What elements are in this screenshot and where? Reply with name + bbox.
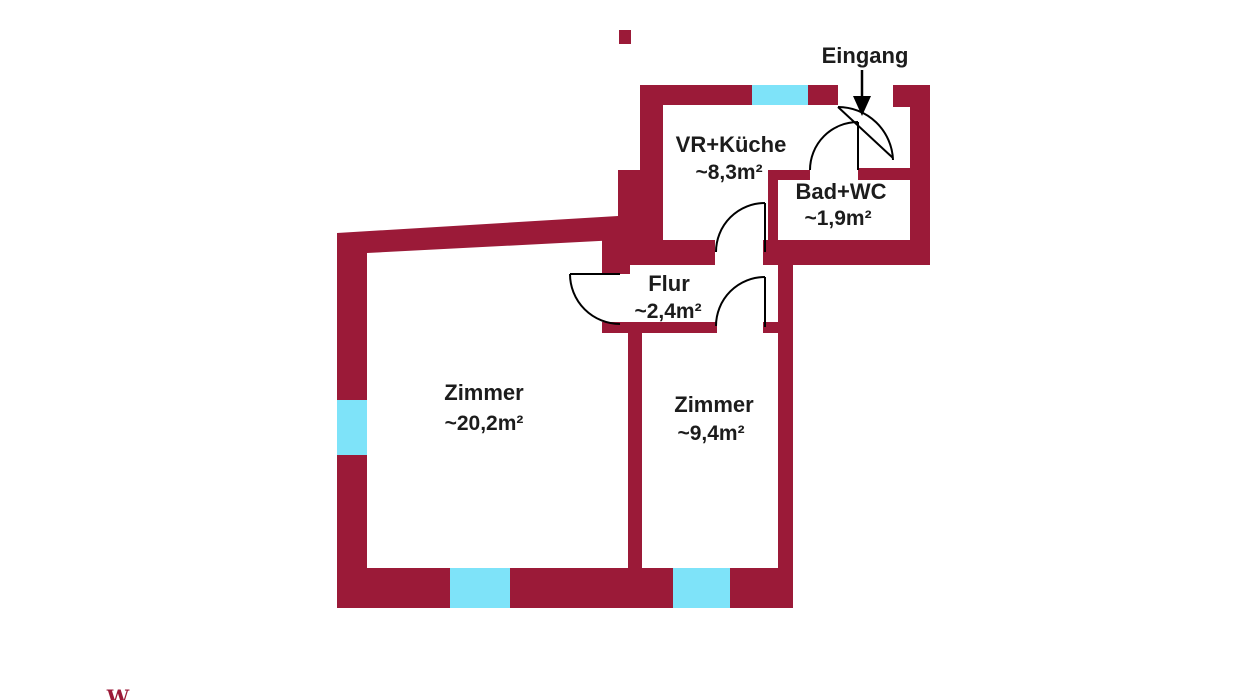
- wall-segment: [730, 568, 793, 608]
- floorplan-page: Eingang VR+Küche ~8,3m² Bad+WC ~1,9m² Fl…: [0, 0, 1236, 700]
- room-label-vr-kueche: VR+Küche: [676, 132, 787, 157]
- room-label-flur: Flur: [648, 271, 690, 296]
- room-label-zimmer-klein: Zimmer: [674, 392, 754, 417]
- room-area-flur: ~2,4m²: [634, 300, 701, 323]
- arrow-head-icon: [853, 96, 871, 116]
- wall-segment: [763, 240, 930, 265]
- room-label-bad-wc: Bad+WC: [795, 179, 886, 204]
- wall-segment: [337, 233, 367, 400]
- door-arc: [716, 203, 765, 252]
- floorplan-drawing: Eingang VR+Küche ~8,3m² Bad+WC ~1,9m² Fl…: [0, 0, 1236, 700]
- wall-segment: [628, 333, 642, 568]
- wall-segment: [337, 568, 450, 608]
- room-area-zimmer-klein: ~9,4m²: [677, 422, 744, 445]
- wall-segment: [618, 170, 663, 240]
- wall-segment: [768, 180, 778, 240]
- wall-segment: [808, 85, 838, 105]
- red-mark: [619, 30, 631, 44]
- room-area-bad-wc: ~1,9m²: [804, 207, 871, 230]
- window-top: [752, 85, 808, 105]
- watermark-letter: W: [106, 685, 130, 700]
- wall-segment: [602, 240, 715, 265]
- window-left: [337, 400, 367, 455]
- door-arc: [716, 277, 765, 326]
- wall-segment: [893, 85, 930, 107]
- room-label-zimmer-gross: Zimmer: [444, 380, 524, 405]
- door-arc: [570, 274, 620, 324]
- room-area-vr-kueche: ~8,3m²: [695, 161, 762, 184]
- entrance-label: Eingang: [822, 43, 909, 68]
- wall-segment-slanted: [337, 216, 618, 253]
- room-area-zimmer-gross: ~20,2m²: [445, 412, 524, 435]
- window-bottom-right: [673, 568, 730, 608]
- wall-segment: [630, 322, 717, 333]
- wall-segment: [640, 85, 663, 170]
- window-bottom-left: [450, 568, 510, 608]
- wall-segment: [510, 568, 673, 608]
- wall-segment: [602, 265, 630, 274]
- wall-segment: [778, 265, 793, 608]
- door-arc: [810, 122, 858, 170]
